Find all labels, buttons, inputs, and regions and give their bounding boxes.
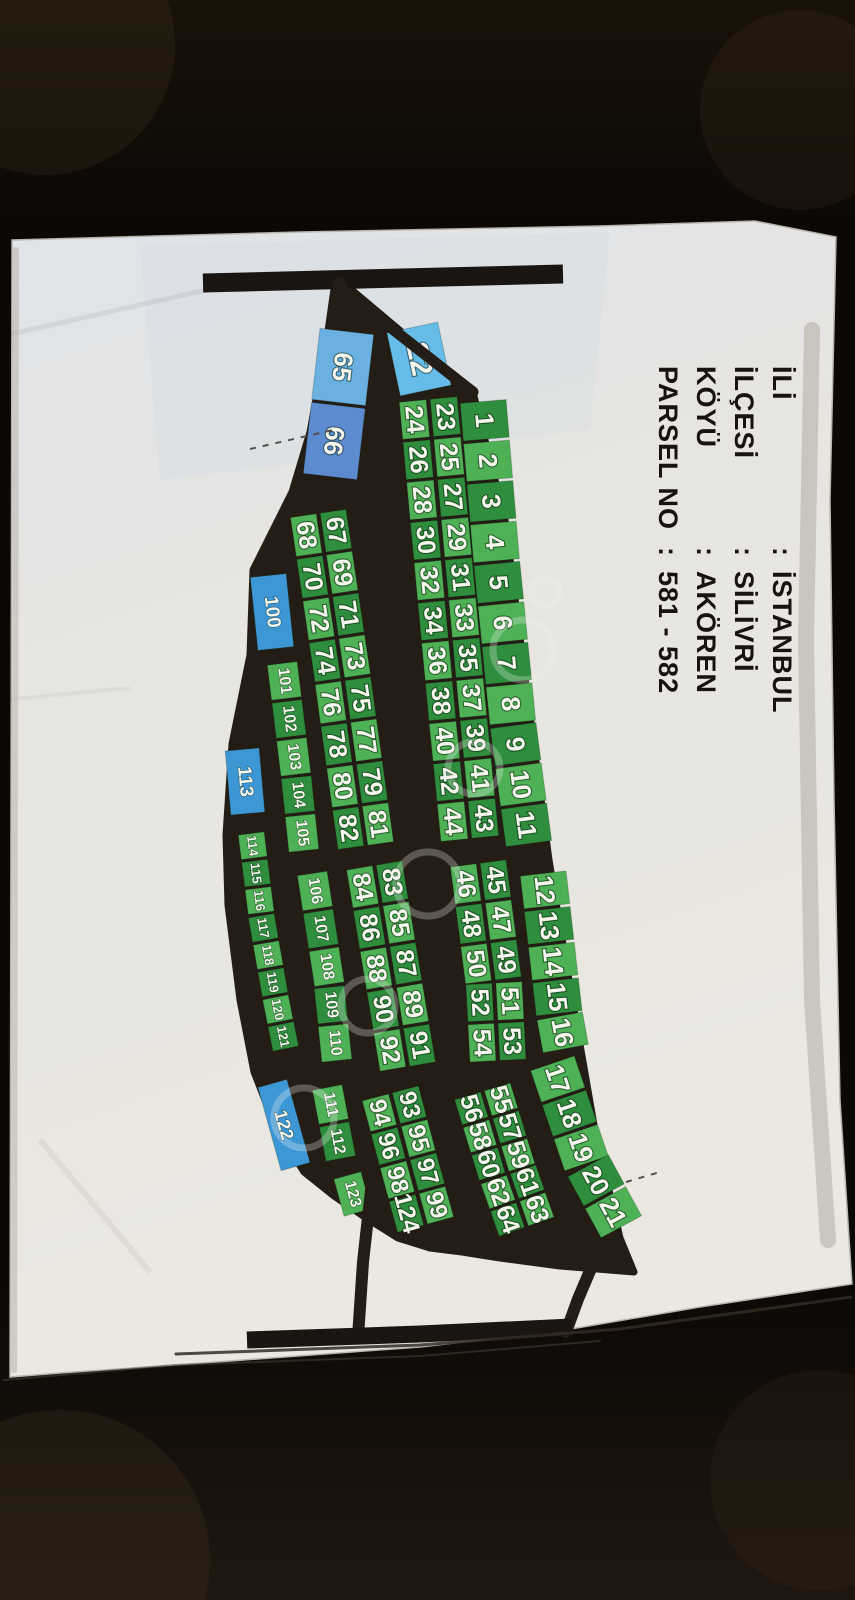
parcel-label-43: 43 [468, 803, 499, 833]
parcel-label-45: 45 [480, 864, 511, 895]
parcel-label-15: 15 [541, 981, 574, 1013]
parcel-label-23: 23 [430, 402, 460, 432]
parcel-label-50: 50 [460, 948, 491, 979]
parcel-label-65: 65 [326, 351, 359, 383]
parcel-label-75: 75 [345, 683, 377, 714]
header-line-district: İLÇESİ : SİLİVRİ [725, 366, 763, 758]
parcel-label-44: 44 [437, 806, 468, 837]
parcel-label-83: 83 [376, 866, 408, 898]
parcel-label-53: 53 [497, 1026, 526, 1055]
parcel-label-16: 16 [545, 1015, 580, 1049]
parcel-label-105: 105 [292, 819, 312, 847]
parcel-label-73: 73 [339, 640, 371, 672]
parcel-label-26: 26 [403, 445, 433, 475]
left-shadow [14, 250, 16, 1370]
parcel-label-71: 71 [332, 599, 364, 631]
parcel-label-76: 76 [315, 687, 347, 718]
header-line-province: İLİ : İSTANBUL [763, 366, 801, 758]
parcel-label-31: 31 [445, 562, 476, 592]
parcel-label-14: 14 [537, 945, 570, 978]
parcel-label-12: 12 [528, 874, 561, 906]
parcel-label-36: 36 [422, 646, 452, 676]
photo-of-parcel-map-document: 6566222423262528273029323134333635383740… [0, 0, 855, 1600]
parcel-label-35: 35 [452, 643, 483, 673]
parcel-label-48: 48 [455, 908, 486, 939]
location-info-block: İLİ : İSTANBUL İLÇESİ : SİLİVRİ KÖYÜ : A… [649, 366, 801, 758]
colon: : [687, 547, 725, 571]
parcel-label-77: 77 [350, 725, 382, 756]
parcel-label-69: 69 [326, 557, 358, 589]
parcel-label-113: 113 [233, 765, 257, 797]
parcel-label-102: 102 [279, 705, 299, 734]
parcel-label-74: 74 [309, 645, 341, 677]
parcel-label-25: 25 [434, 442, 464, 472]
parcel-label-79: 79 [356, 766, 388, 797]
parcel-label-33: 33 [449, 602, 479, 632]
parcel-label-101: 101 [274, 667, 294, 696]
parcel-label-29: 29 [441, 522, 471, 552]
district-label: İLÇESİ [725, 366, 763, 547]
parcel-label-110: 110 [325, 1029, 345, 1057]
village-value: AKÖREN [687, 571, 725, 758]
parcel-label-66: 66 [318, 425, 351, 457]
parcel-label-1: 1 [469, 412, 500, 429]
parcel-label-37: 37 [456, 683, 486, 713]
header-line-village: KÖYÜ : AKÖREN [687, 366, 725, 758]
parcel-label-34: 34 [418, 605, 449, 635]
village-label: KÖYÜ [687, 366, 725, 547]
parcel-label-52: 52 [465, 988, 494, 1017]
parcel-label-5: 5 [483, 574, 514, 591]
parcel-label-89: 89 [396, 988, 428, 1020]
parcel-label-11: 11 [510, 809, 543, 840]
parcel-label-10: 10 [504, 768, 538, 801]
parcel-label-82: 82 [332, 812, 364, 843]
top-road [203, 274, 563, 283]
district-value: SİLİVRİ [725, 571, 763, 758]
parcel-label-38: 38 [425, 686, 456, 716]
province-label: İLİ [763, 366, 801, 547]
parcel-label-70: 70 [297, 561, 329, 593]
parcel-label-28: 28 [407, 485, 437, 515]
parcel-label-51: 51 [495, 986, 524, 1015]
colon: : [725, 547, 763, 571]
parcel-label-103: 103 [284, 743, 304, 772]
parcel-label-92: 92 [374, 1034, 406, 1066]
parcel-label-84: 84 [346, 871, 378, 903]
parcel-label-100: 100 [260, 595, 284, 629]
parcel-label-87: 87 [390, 947, 422, 979]
parcel-label-72: 72 [303, 603, 335, 635]
parcel-no-label: PARSEL NO [649, 366, 687, 547]
province-value: İSTANBUL [763, 571, 801, 758]
parcel-label-3: 3 [476, 493, 507, 510]
parcel-label-30: 30 [410, 525, 440, 555]
parcel-label-81: 81 [362, 808, 394, 840]
parcel-label-91: 91 [403, 1029, 435, 1061]
parcel-label-24: 24 [399, 404, 429, 434]
parcel-label-54: 54 [467, 1028, 496, 1057]
parcel-label-27: 27 [437, 482, 467, 512]
parcel-label-86: 86 [353, 912, 385, 944]
parcel-label-47: 47 [485, 904, 516, 935]
parcel-label-104: 104 [288, 781, 308, 809]
colon: : [649, 547, 687, 571]
parcel-map-svg: 6566222423262528273029323134333635383740… [0, 0, 855, 1600]
parcel-label-114: 114 [244, 834, 262, 857]
parcel-label-116: 116 [251, 889, 268, 912]
parcel-label-115: 115 [247, 862, 264, 885]
parcel-label-67: 67 [320, 515, 352, 547]
parcel-label-32: 32 [414, 565, 444, 595]
parcel-label-8: 8 [495, 695, 526, 712]
parcel-label-68: 68 [290, 519, 322, 551]
parcel-label-49: 49 [490, 944, 521, 975]
parcel-no-value: 581 - 582 [649, 571, 687, 758]
parcel-label-13: 13 [533, 909, 566, 941]
header-line-parcel-no: PARSEL NO : 581 - 582 [649, 366, 687, 758]
parcel-label-78: 78 [321, 729, 353, 760]
parcel-label-80: 80 [327, 771, 359, 802]
colon: : [763, 547, 801, 571]
parcel-label-2: 2 [473, 452, 504, 469]
